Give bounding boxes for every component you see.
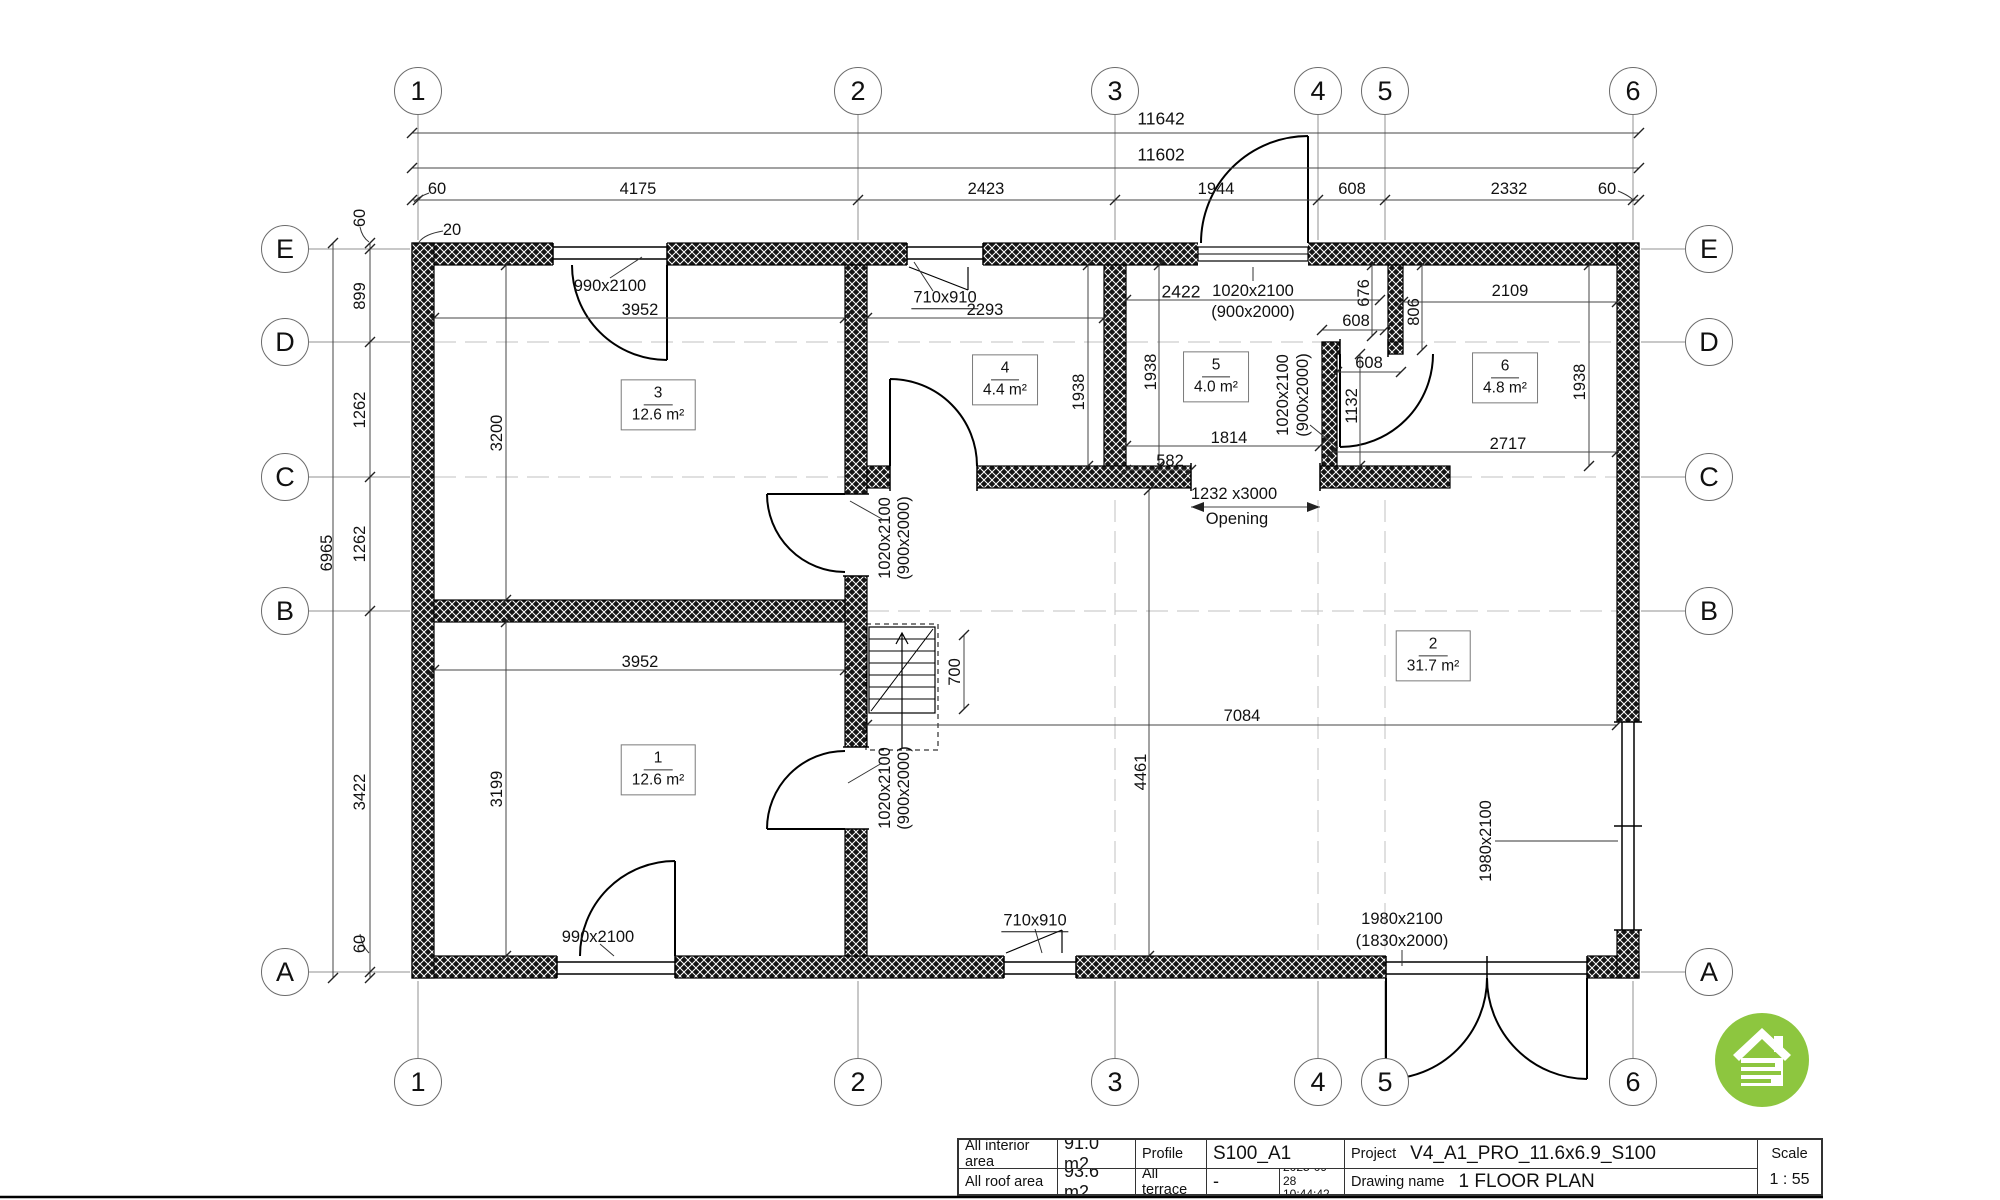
- room-tag-1: 112.6 m²: [621, 744, 696, 795]
- terrace-value: -: [1207, 1169, 1280, 1194]
- interior-area-value: 91.0 m2: [1058, 1140, 1136, 1169]
- dim-1938-room4: 1938: [1071, 374, 1088, 411]
- dim-20: 20: [443, 222, 461, 239]
- door-room6-size: 1020x2100: [1275, 354, 1292, 436]
- title-block: All interior area 91.0 m2 Profile S100_A…: [957, 1138, 1823, 1196]
- dim-opening-size: 1232 x3000: [1191, 486, 1277, 503]
- grid-bubble-row-E-left: E: [261, 225, 309, 273]
- dim-2109: 2109: [1492, 283, 1529, 300]
- door-entrance-size-2: (900x2000): [1211, 304, 1294, 321]
- room-number: 5: [1202, 355, 1231, 377]
- window-710-top-label: 710x910: [911, 289, 978, 309]
- dim-1814: 1814: [1211, 430, 1248, 447]
- interior-area-label: All interior area: [959, 1140, 1058, 1169]
- dim-1944: 1944: [1198, 181, 1235, 198]
- dim-2332: 2332: [1491, 181, 1528, 198]
- grid-bubble-col-5-top: 5: [1361, 67, 1409, 115]
- grid-bubble-col-3-top: 3: [1091, 67, 1139, 115]
- stairs: [866, 624, 938, 750]
- dim-1938-room6: 1938: [1572, 364, 1589, 401]
- dim-1938-room5: 1938: [1143, 354, 1160, 391]
- grid-bubble-row-C-right: C: [1685, 453, 1733, 501]
- room-tag-3: 312.6 m²: [621, 379, 696, 430]
- dim-806: 806: [1406, 298, 1423, 326]
- room-tag-2: 231.7 m²: [1396, 630, 1471, 681]
- room-tag-4: 44.4 m²: [972, 354, 1038, 405]
- dim-60-left-top: 60: [352, 209, 369, 227]
- dim-4175: 4175: [620, 181, 657, 198]
- project-field: ProjectV4_A1_PRO_11.6x6.9_S100: [1345, 1140, 1758, 1169]
- dim-676: 676: [1356, 279, 1373, 307]
- roof-area-value: 93.6 m2: [1058, 1169, 1136, 1194]
- dim-4461: 4461: [1133, 754, 1150, 791]
- grid-bubble-col-4-bottom: 4: [1294, 1058, 1342, 1106]
- grid-bubble-row-A-left: A: [261, 948, 309, 996]
- dim-1262-b: 1262: [352, 526, 369, 563]
- profile-value: S100_A1: [1207, 1140, 1345, 1169]
- dim-3952-bottom: 3952: [622, 654, 659, 671]
- door-room3-size: 1020x2100: [877, 497, 894, 579]
- floor-plan-page: All interior area 91.0 m2 Profile S100_A…: [0, 0, 2000, 1200]
- room-area: 12.6 m²: [632, 406, 685, 426]
- profile-label: Profile: [1136, 1140, 1207, 1169]
- dim-3422: 3422: [352, 774, 369, 811]
- grid-bubble-row-D-right: D: [1685, 318, 1733, 366]
- dim-2717: 2717: [1490, 436, 1527, 453]
- dim-3199: 3199: [489, 771, 506, 808]
- dim-total-11602: 11602: [1137, 146, 1184, 164]
- door-room1-size-2: (900x2000): [896, 746, 913, 829]
- drawing-name-field: Drawing name1 FLOOR PLAN: [1345, 1169, 1758, 1194]
- dim-2423: 2423: [968, 181, 1005, 198]
- grid-bubble-col-6-bottom: 6: [1609, 1058, 1657, 1106]
- room-area: 4.0 m²: [1194, 378, 1238, 398]
- date-field: 2025-09-2810:44:42: [1280, 1169, 1345, 1194]
- door-990-bottom-label: 990x2100: [562, 929, 635, 946]
- room-area: 4.4 m²: [983, 381, 1027, 401]
- door-room3-size-2: (900x2000): [896, 496, 913, 579]
- grid-bubble-row-E-right: E: [1685, 225, 1733, 273]
- grid-bubble-col-5-bottom: 5: [1361, 1058, 1409, 1106]
- room-area: 4.8 m²: [1483, 379, 1527, 399]
- door-990-top-label: 990x2100: [574, 278, 647, 295]
- grid-bubble-col-3-bottom: 3: [1091, 1058, 1139, 1106]
- grid-bubble-col-2-top: 2: [834, 67, 882, 115]
- room-tag-5: 54.0 m²: [1183, 351, 1249, 402]
- door-1980-label-2: (1830x2000): [1356, 933, 1449, 950]
- grid-bubble-row-B-left: B: [261, 587, 309, 635]
- grid-bubble-row-D-left: D: [261, 318, 309, 366]
- room-number: 1: [644, 748, 673, 770]
- dim-2422: 2422: [1162, 283, 1201, 301]
- grid-bubble-row-C-left: C: [261, 453, 309, 501]
- dim-700: 700: [947, 658, 964, 686]
- dim-3200: 3200: [489, 415, 506, 452]
- dim-608-niche: 608: [1342, 313, 1370, 330]
- opening-label: Opening: [1206, 511, 1268, 528]
- grid-bubble-col-1-top: 1: [394, 67, 442, 115]
- window-1980-right-label: 1980x2100: [1478, 800, 1495, 882]
- logo-house-icon: [1715, 1013, 1809, 1107]
- room-number: 3: [644, 383, 673, 405]
- dim-60-top-left: 60: [428, 181, 446, 198]
- grid-bubble-col-4-top: 4: [1294, 67, 1342, 115]
- dim-60-left-bottom: 60: [352, 935, 369, 953]
- room-area: 31.7 m²: [1407, 657, 1460, 677]
- door-1980-label: 1980x2100: [1361, 911, 1443, 928]
- dim-6965: 6965: [319, 535, 336, 572]
- grid-bubble-col-6-top: 6: [1609, 67, 1657, 115]
- dim-3952-top: 3952: [622, 302, 659, 319]
- grid-bubble-row-A-right: A: [1685, 948, 1733, 996]
- dim-7084: 7084: [1224, 708, 1261, 725]
- dim-1262-a: 1262: [352, 392, 369, 429]
- terrace-label: All terrace: [1136, 1169, 1207, 1194]
- dim-1132: 1132: [1344, 388, 1361, 423]
- dim-608-door: 608: [1355, 355, 1383, 372]
- roof-area-label: All roof area: [959, 1169, 1058, 1194]
- dim-582: 582: [1156, 453, 1184, 470]
- grid-bubble-col-2-bottom: 2: [834, 1058, 882, 1106]
- dim-899: 899: [352, 282, 369, 310]
- room-number: 2: [1419, 634, 1448, 656]
- grid-bubble-col-1-bottom: 1: [394, 1058, 442, 1106]
- room-number: 4: [991, 358, 1020, 380]
- room-number: 6: [1491, 356, 1520, 378]
- dim-608-top: 608: [1338, 181, 1366, 198]
- grid-bubble-row-B-right: B: [1685, 587, 1733, 635]
- room-area: 12.6 m²: [632, 771, 685, 791]
- room-tag-6: 64.8 m²: [1472, 352, 1538, 403]
- dim-60-top-right: 60: [1598, 181, 1616, 198]
- door-entrance-size: 1020x2100: [1212, 283, 1294, 300]
- dim-total-11642: 11642: [1137, 110, 1184, 128]
- scale-field: Scale1 : 55: [1758, 1140, 1821, 1194]
- door-room6-size-2: (900x2000): [1295, 353, 1312, 436]
- door-room1-size: 1020x2100: [877, 747, 894, 829]
- window-710-bottom-label: 710x910: [1001, 912, 1068, 932]
